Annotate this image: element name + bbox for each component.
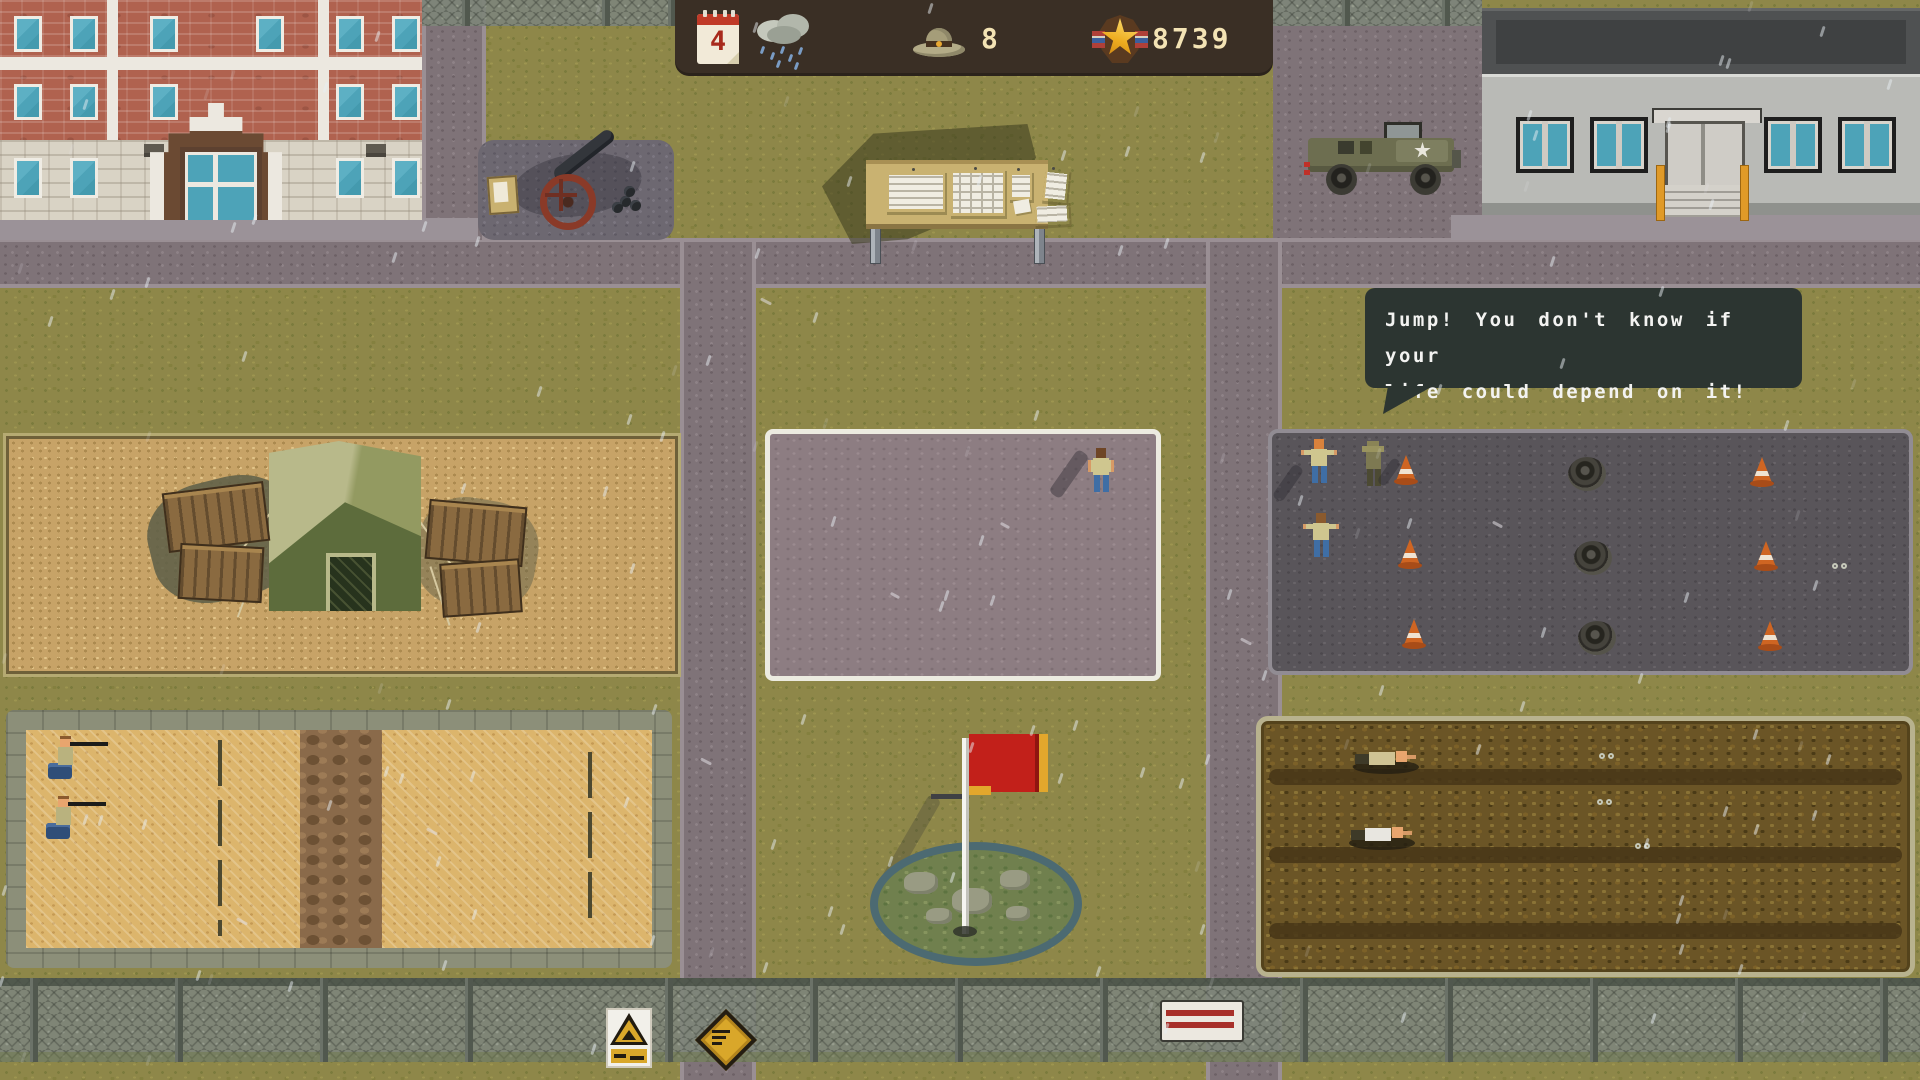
shooter-body: [58, 747, 73, 765]
grass-mound: [870, 842, 1082, 966]
speech-line-2: life could depend on it!: [1385, 374, 1802, 410]
striped-range-sign: [1160, 1000, 1244, 1042]
pin: [974, 167, 977, 170]
window: [1590, 117, 1648, 173]
window: [150, 84, 178, 120]
range-dirt-path: [300, 730, 382, 948]
recruit-head: [1096, 448, 1106, 458]
crawler-body: [1369, 752, 1395, 765]
fence-post: [1300, 978, 1308, 1062]
traffic-cone: [1398, 539, 1422, 569]
game-scene: Jump! You don't know if your life could …: [0, 0, 1920, 1080]
recruit-leg: [1103, 475, 1109, 492]
sign-dash: [712, 1030, 730, 1033]
plaque-easel: [487, 175, 520, 215]
window: [336, 84, 364, 120]
rifle: [70, 742, 108, 746]
fence-post: [1590, 978, 1598, 1062]
notice-paper: [1033, 201, 1070, 227]
recruit-leg: [1323, 540, 1329, 557]
window: [392, 16, 420, 52]
calendar-icon: 4: [697, 14, 739, 64]
recruit-head: [1316, 513, 1326, 523]
pin: [1052, 167, 1055, 170]
window: [70, 158, 98, 198]
obstacle-course[interactable]: [1268, 429, 1913, 675]
pin: [1017, 168, 1020, 171]
recruit[interactable]: [1084, 448, 1118, 500]
fence-post: [1100, 978, 1108, 1062]
wall-vent: [366, 144, 386, 157]
tire-obstacle: [1568, 457, 1606, 491]
hq-roof-inset: [1496, 20, 1906, 64]
jeep-seat: [1360, 141, 1372, 154]
crawler-arm: [1407, 755, 1416, 759]
pebbles: [1832, 563, 1848, 569]
perimeter-fence-bottom: [0, 978, 1920, 1062]
pebbles: [1635, 843, 1651, 849]
window: [150, 16, 178, 52]
entrance-door: [180, 147, 262, 230]
sidewalk-left: [0, 218, 478, 240]
window: [336, 158, 364, 198]
window: [70, 16, 98, 52]
ground-scuff: [1492, 521, 1503, 529]
window: [14, 16, 42, 52]
supply-crate: [162, 481, 271, 553]
rock: [1000, 870, 1030, 890]
road-vertical-left: [680, 242, 756, 1080]
mud-furrow: [1269, 923, 1902, 939]
flag-gold-trim: [969, 786, 991, 795]
sergeant-leg: [1367, 469, 1373, 486]
recruit-leg: [1312, 466, 1318, 483]
red-stripe: [1166, 1010, 1234, 1016]
prone-shooter[interactable]: [44, 796, 106, 842]
rifle: [68, 802, 106, 806]
recruit-leg: [1314, 540, 1320, 557]
sandbag: [46, 823, 70, 839]
board-panel: [866, 160, 1048, 229]
jeep-taillight: [1304, 162, 1310, 167]
crawler-head: [1392, 827, 1403, 838]
rock: [1006, 906, 1030, 921]
window: [14, 158, 42, 198]
jeep-bumper: [1452, 150, 1461, 168]
recruit-arm: [1109, 460, 1114, 472]
headquarters-building[interactable]: [1482, 0, 1920, 240]
red-stripe: [1166, 1022, 1234, 1028]
rain-cloud-icon: [755, 12, 811, 64]
barracks-pilaster: [107, 0, 118, 140]
star-medal-icon: [1095, 14, 1145, 64]
sign-dash: [712, 1036, 726, 1039]
window: [70, 84, 98, 120]
hq-steps: [1665, 185, 1741, 217]
recruit-count: 8: [981, 22, 1001, 55]
sign-dash: [712, 1042, 722, 1045]
rock: [952, 888, 992, 914]
parade-ground[interactable]: [765, 429, 1161, 681]
notice-paper: [950, 169, 1006, 217]
crawler-body: [1365, 828, 1391, 841]
window: [14, 84, 42, 120]
crawling-recruit[interactable]: [1353, 747, 1423, 774]
recruit-head: [1314, 439, 1324, 449]
ground-scuff: [890, 592, 900, 599]
jeep-wheel: [1326, 164, 1357, 195]
recruit-arm: [1301, 450, 1311, 455]
firing-line-posts: [218, 740, 222, 936]
label-dash: [614, 1054, 626, 1058]
window: [1516, 117, 1574, 173]
fence-post: [1735, 978, 1743, 1062]
recruit-arm: [1327, 450, 1337, 455]
recruit-arm: [1088, 460, 1093, 472]
flagpole-mound[interactable]: [865, 730, 1075, 960]
supply-crate: [178, 543, 265, 603]
shadow-smear: [1272, 463, 1305, 503]
flagpole: [962, 738, 969, 934]
red-flag: [969, 734, 1048, 792]
traffic-cone: [1758, 621, 1782, 651]
road-scuff: [760, 297, 772, 305]
recruit-arm: [1329, 524, 1339, 529]
fence-post: [462, 0, 470, 26]
rock: [904, 872, 938, 894]
window: [1838, 117, 1896, 173]
recruit-leg: [1094, 475, 1100, 492]
jeep-seat: [1338, 141, 1354, 154]
barracks-pilaster: [318, 0, 329, 140]
hq-handrail: [1740, 165, 1749, 221]
barracks-building[interactable]: [0, 0, 422, 220]
prone-shooter[interactable]: [46, 736, 108, 782]
fence-post: [810, 978, 818, 1062]
hq-handrail: [1656, 165, 1665, 221]
speech-bubble: Jump! You don't know if your life could …: [1365, 288, 1802, 388]
tent-door: [326, 553, 376, 615]
window: [392, 84, 420, 120]
shooter-body: [56, 807, 71, 825]
notice-paper: [1013, 199, 1031, 215]
army-jeep[interactable]: [1308, 122, 1460, 196]
cannonball: [612, 202, 623, 213]
window: [256, 16, 284, 52]
fence-post: [30, 978, 38, 1062]
fence-post: [1445, 978, 1453, 1062]
recruit-torso: [1313, 523, 1329, 540]
window: [1764, 117, 1822, 173]
fence-post: [665, 978, 673, 1062]
shooting-range[interactable]: [6, 710, 672, 968]
warning-sign: [606, 1008, 652, 1068]
firing-line-posts: [588, 752, 592, 924]
pebbles: [1597, 799, 1613, 805]
window: [336, 16, 364, 52]
recruit-leg: [1321, 466, 1327, 483]
fence-post: [465, 978, 473, 1062]
tire-obstacle: [1574, 541, 1612, 575]
supply-crate: [439, 558, 523, 617]
supply-tent-yard[interactable]: [6, 436, 678, 674]
score-value: 8739: [1152, 22, 1231, 55]
notice-paper: [886, 171, 946, 213]
label-dash: [630, 1056, 644, 1060]
traffic-cone: [1754, 541, 1778, 571]
fence-post: [175, 978, 183, 1062]
window: [392, 158, 420, 198]
army-tent: [269, 441, 421, 611]
barracks-floor-band: [0, 57, 422, 70]
notice-paper: [1041, 168, 1070, 205]
recruit-arm: [1303, 524, 1313, 529]
fence-post: [1442, 0, 1450, 26]
diamond-plate: [695, 1009, 757, 1071]
fence-post: [955, 978, 963, 1062]
notice-paper: [1009, 171, 1033, 201]
drill-hat-icon: [913, 22, 965, 60]
traffic-cone: [1394, 455, 1418, 485]
recruit[interactable]: [1304, 513, 1338, 565]
recruit[interactable]: [1302, 439, 1336, 491]
road-vertical-topleft: [422, 0, 486, 240]
supply-crate: [425, 499, 528, 567]
caution-diamond-sign: [696, 1010, 748, 1062]
cannon-memorial[interactable]: [478, 140, 674, 240]
cannonball: [624, 186, 635, 197]
pin: [912, 168, 915, 171]
tire-obstacle: [1578, 621, 1616, 655]
rock: [926, 908, 952, 924]
cannonball: [630, 200, 641, 211]
recruit-torso: [1311, 449, 1327, 466]
sergeant-torso: [1366, 452, 1381, 469]
ground-scuff: [1000, 522, 1010, 529]
traffic-cone: [1750, 457, 1774, 487]
mud-crawl-field[interactable]: [1256, 716, 1915, 977]
jeep-wheel: [1410, 164, 1441, 195]
crawler-arm: [1403, 831, 1412, 835]
crawling-recruit[interactable]: [1349, 823, 1419, 850]
traffic-cone: [1402, 619, 1426, 649]
pebbles: [1599, 753, 1615, 759]
fence-post: [602, 0, 610, 26]
fence-post: [1880, 978, 1888, 1062]
recruit-torso: [1093, 458, 1109, 475]
notice-board[interactable]: [830, 118, 1070, 258]
hud-bar: 4 8 8739: [675, 0, 1273, 76]
hq-door: [1665, 121, 1745, 191]
pole-base-shadow: [953, 926, 977, 937]
day-number: 4: [697, 26, 739, 57]
crawler-head: [1396, 751, 1407, 762]
fence-post: [1342, 0, 1350, 26]
speech-line-1: Jump! You don't know if your: [1385, 302, 1802, 374]
fence-post: [320, 978, 328, 1062]
cannon-wheel: [540, 174, 596, 230]
sandbag: [48, 763, 72, 779]
